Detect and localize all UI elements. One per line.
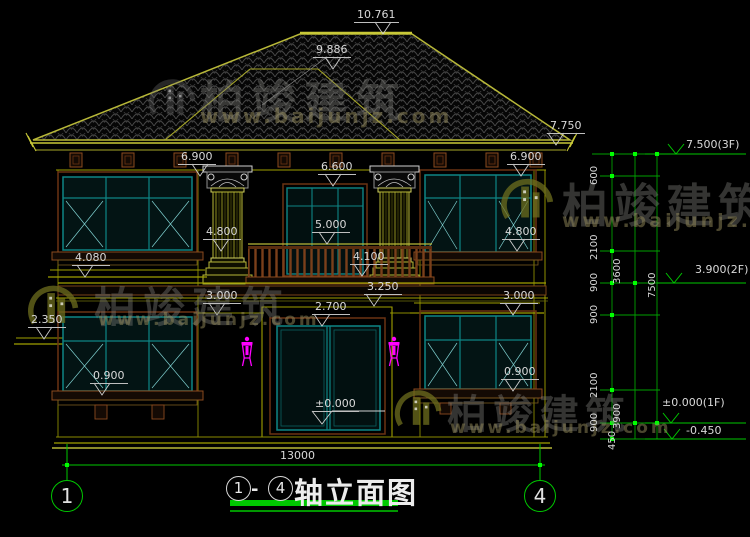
chain-2100b: 2100 (589, 373, 600, 398)
dim-10761: 10.761 (354, 9, 399, 23)
dim-3250: 3.250 (364, 281, 402, 295)
chain-600: 600 (589, 166, 600, 185)
chain-3900: 3900 (612, 404, 623, 429)
dim-4800-left: 4.800 (203, 226, 241, 240)
chain-7500: 7500 (647, 273, 658, 298)
title-dash: - (251, 479, 258, 500)
eave-curl-left (26, 133, 36, 151)
dim-0900-right: 0.900 (501, 366, 539, 380)
dim-6600: 6.600 (318, 161, 356, 175)
chain-3600: 3600 (612, 259, 623, 284)
dim-3000-right: 3.000 (500, 290, 538, 304)
dim-2700: 2.700 (312, 301, 350, 315)
dim-4080: 4.080 (72, 252, 110, 266)
dim-2350: 2.350 (28, 314, 66, 328)
level-1f: ±0.000(1F) (662, 396, 725, 409)
corbel-row (70, 153, 542, 167)
axis-bubble-4: 4 (524, 480, 556, 512)
cad-elevation-canvas: 柏竣建筑 www.baijunjz.com 柏竣建筑 www.baijunjz.… (0, 0, 750, 537)
wall-lamp-right (389, 337, 400, 366)
level-2f: 3.900(2F) (695, 263, 748, 276)
dim-7750: 7.750 (547, 120, 585, 134)
drawing-title: 轴立面图 (294, 470, 418, 512)
watermark-url: www.baijunjz.com (450, 418, 672, 438)
dim-0900-left: 0.900 (90, 370, 128, 384)
dim-13000: 13000 (280, 449, 315, 462)
axis-bubble-1: 1 (51, 480, 83, 512)
chain-900b: 900 (589, 305, 600, 324)
chain-2100a: 2100 (589, 235, 600, 260)
eave-curl-right (567, 133, 577, 151)
watermark-url: www.baijunjz.com (98, 310, 320, 330)
dim-4800-right: 4.800 (502, 226, 540, 240)
chain-900a: 900 (589, 273, 600, 292)
chain-900c: 900 (589, 413, 600, 432)
watermark-url: www.baijunjz.com (200, 104, 452, 128)
title-axis-circle-4: 4 (268, 476, 293, 501)
watermark-url: www.baijunjz.com (562, 210, 750, 232)
level-minus-450: -0.450 (686, 424, 721, 437)
title-axis-circle-1: 1 (226, 476, 251, 501)
dim-3000-left: 3.000 (203, 290, 241, 304)
wall-lamp-left (242, 337, 253, 366)
dim-4100: 4.100 (350, 251, 388, 265)
dim-6900-left: 6.900 (178, 151, 216, 165)
dim-9886: 9.886 (313, 44, 351, 58)
dim-5000: 5.000 (312, 219, 350, 233)
dim-zero-door: ±0.000 (312, 398, 359, 412)
level-3f: 7.500(3F) (686, 138, 739, 151)
chain-450: 450 (607, 431, 618, 450)
dim-6900-right: 6.900 (507, 151, 545, 165)
